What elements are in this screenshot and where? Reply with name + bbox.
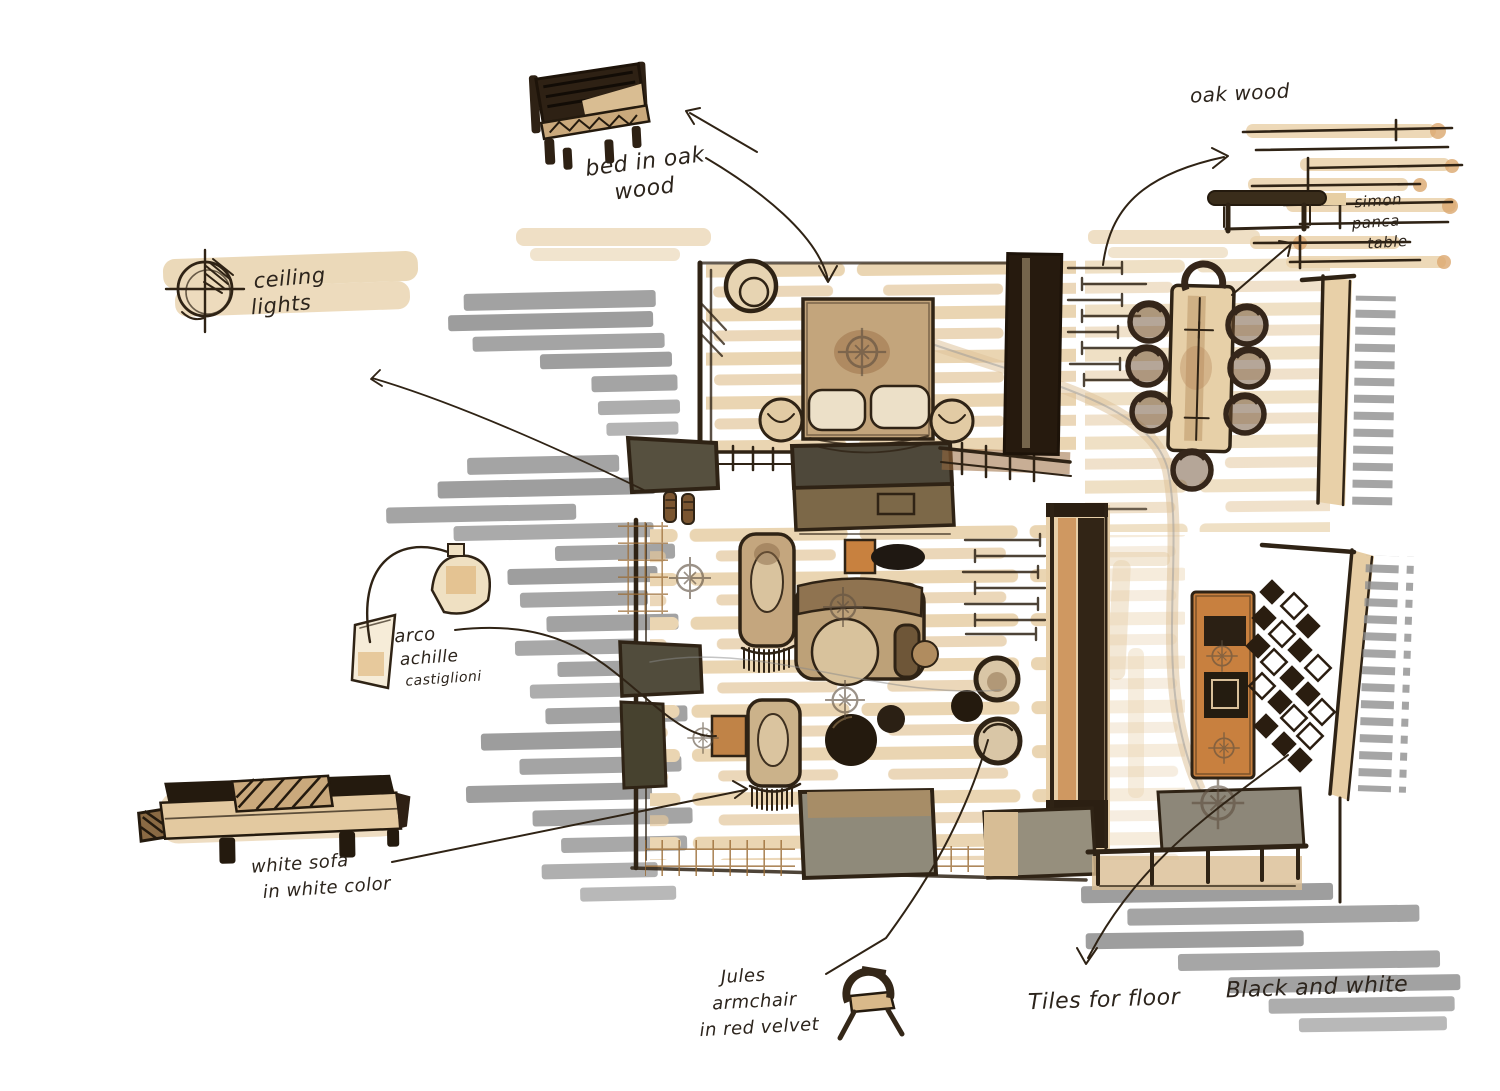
shoes-icon — [664, 492, 694, 524]
bed — [803, 299, 933, 453]
annotation-line: lights — [250, 290, 312, 319]
sketch-canvas: ceiling lights bed in oak wood oak wood … — [0, 0, 1500, 1091]
floor-plan-sketch: ceiling lights bed in oak wood oak wood … — [0, 0, 1500, 1091]
annotation-line: in white color — [262, 873, 393, 903]
divider-sideboard — [792, 443, 954, 534]
annotation-line: arco — [394, 624, 437, 648]
annotation-line: simon — [1354, 190, 1403, 211]
diamond-floor-tiles — [1245, 579, 1334, 772]
gray-marker-shading-bottom-right — [1081, 881, 1461, 1035]
desk-cabinet — [1204, 672, 1248, 718]
annotation-line: in red velvet — [699, 1014, 820, 1041]
white-sofa-sketch — [138, 774, 411, 865]
annotation-white-sofa: white sofa in white color — [250, 847, 392, 904]
center-sofa — [796, 578, 924, 685]
entry-closet — [628, 438, 718, 524]
dining-table — [1168, 285, 1234, 452]
annotation-line: Jules — [717, 965, 766, 988]
annotation-bed: bed in oak wood — [584, 142, 710, 208]
annotation-line: armchair — [712, 989, 799, 1014]
annotation-oak-wood: oak wood — [1189, 78, 1290, 107]
annotation-line: table — [1367, 232, 1409, 253]
bedroom-stool — [726, 261, 776, 311]
desk-unit — [1192, 592, 1254, 778]
annotation-line: Tiles for floor — [1028, 985, 1182, 1015]
annotation-line: wood — [613, 173, 677, 205]
annotation-line: panca — [1350, 211, 1400, 232]
wardrobe — [1004, 254, 1061, 455]
annotation-line: white sofa — [250, 850, 349, 878]
jules-chair-sketch — [840, 968, 902, 1038]
pillow — [871, 386, 929, 428]
annotation-line: achille — [399, 646, 459, 670]
side-chest — [712, 716, 746, 756]
desk-appliance — [1204, 616, 1246, 646]
annotation-arco: arco achille castiglioni — [394, 621, 483, 691]
annotation-jules: Jules armchair in red velvet — [696, 962, 820, 1041]
pillow — [809, 390, 865, 430]
annotation-line: castiglioni — [405, 668, 482, 689]
